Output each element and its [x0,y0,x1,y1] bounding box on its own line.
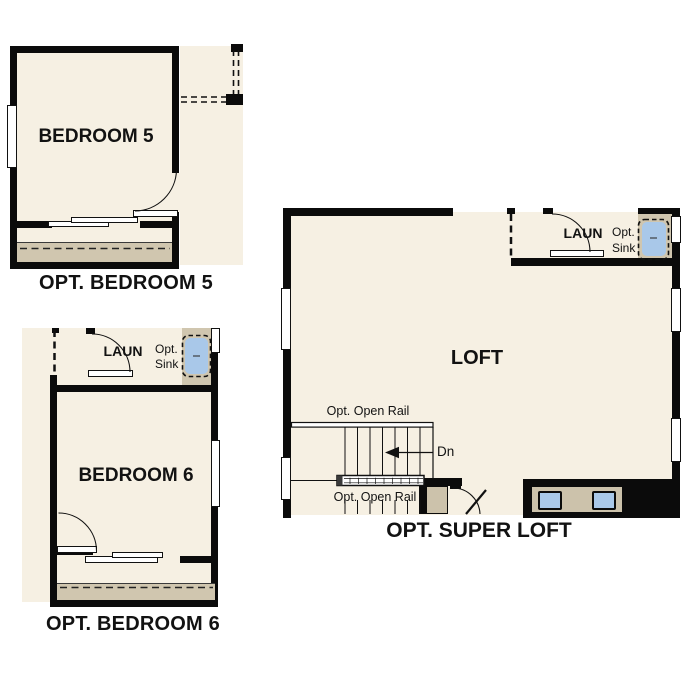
bedroom5-room [10,46,179,269]
door-leaf-icon [133,210,178,217]
window-icon [281,457,291,500]
loft-room-label: LOFT [451,347,503,369]
wall [50,375,57,607]
loft-laundry-label: LAUN [564,226,603,242]
wall [50,385,218,392]
wall-stub [426,486,448,514]
closet-wall [180,556,218,563]
window-icon [211,328,220,353]
wall-post [226,94,243,105]
window-icon [671,288,681,332]
open-rail-top-label: Opt. Open Rail [327,404,410,418]
laundry-shelf-icon [550,250,604,257]
window-icon [211,440,220,507]
sink-icon [642,222,666,256]
bedroom5-hallway-floor [180,46,243,265]
wall [511,258,680,266]
closet-wall [10,221,52,228]
bedroom6-caption: OPT. BEDROOM 6 [46,613,220,635]
sink-icon [185,338,208,374]
bedroom6-opt-sink-label-2: Sink [155,358,178,371]
wall [419,486,426,514]
sliding-door-icon [71,217,138,223]
bedroom6-laundry-label: LAUN [104,344,143,360]
bedroom5-room-label: BEDROOM 5 [38,126,153,147]
wall [283,208,453,216]
bedroom5-closet-strip [17,242,172,262]
sink-icon [538,491,562,510]
bedroom5-door-opening [171,173,180,212]
door-leaf-icon [57,546,97,553]
window-icon [671,216,681,243]
stairs-down-label: Dn [437,444,454,459]
bedroom6-room-label: BEDROOM 6 [78,465,193,486]
laundry-shelf-icon [88,370,133,377]
wall [50,600,218,607]
wall-post [507,208,515,214]
wall-post [52,328,59,333]
bedroom6-opt-sink-label-1: Opt. [155,343,178,356]
sink-icon [592,491,616,510]
wall [672,208,680,518]
window-icon [281,288,291,350]
door-frame-post [450,478,461,489]
door-hinge-post [86,328,95,334]
floorplan-sheet: BEDROOM 5 OPT. BEDROOM 5 LAUN Opt. Sink … [0,0,687,687]
window-icon [671,418,681,462]
wall-post [231,44,243,52]
super-loft-caption: OPT. SUPER LOFT [386,519,572,543]
open-rail-bottom-label: Opt. Open Rail [334,490,417,504]
loft-opt-sink-label-2: Sink [612,242,635,255]
window-icon [7,105,17,168]
bedroom5-caption: OPT. BEDROOM 5 [39,272,213,294]
closet-wall [140,221,179,228]
door-hinge-post [543,208,553,214]
sliding-door-icon [112,552,163,558]
loft-opt-sink-label-1: Opt. [612,226,635,239]
